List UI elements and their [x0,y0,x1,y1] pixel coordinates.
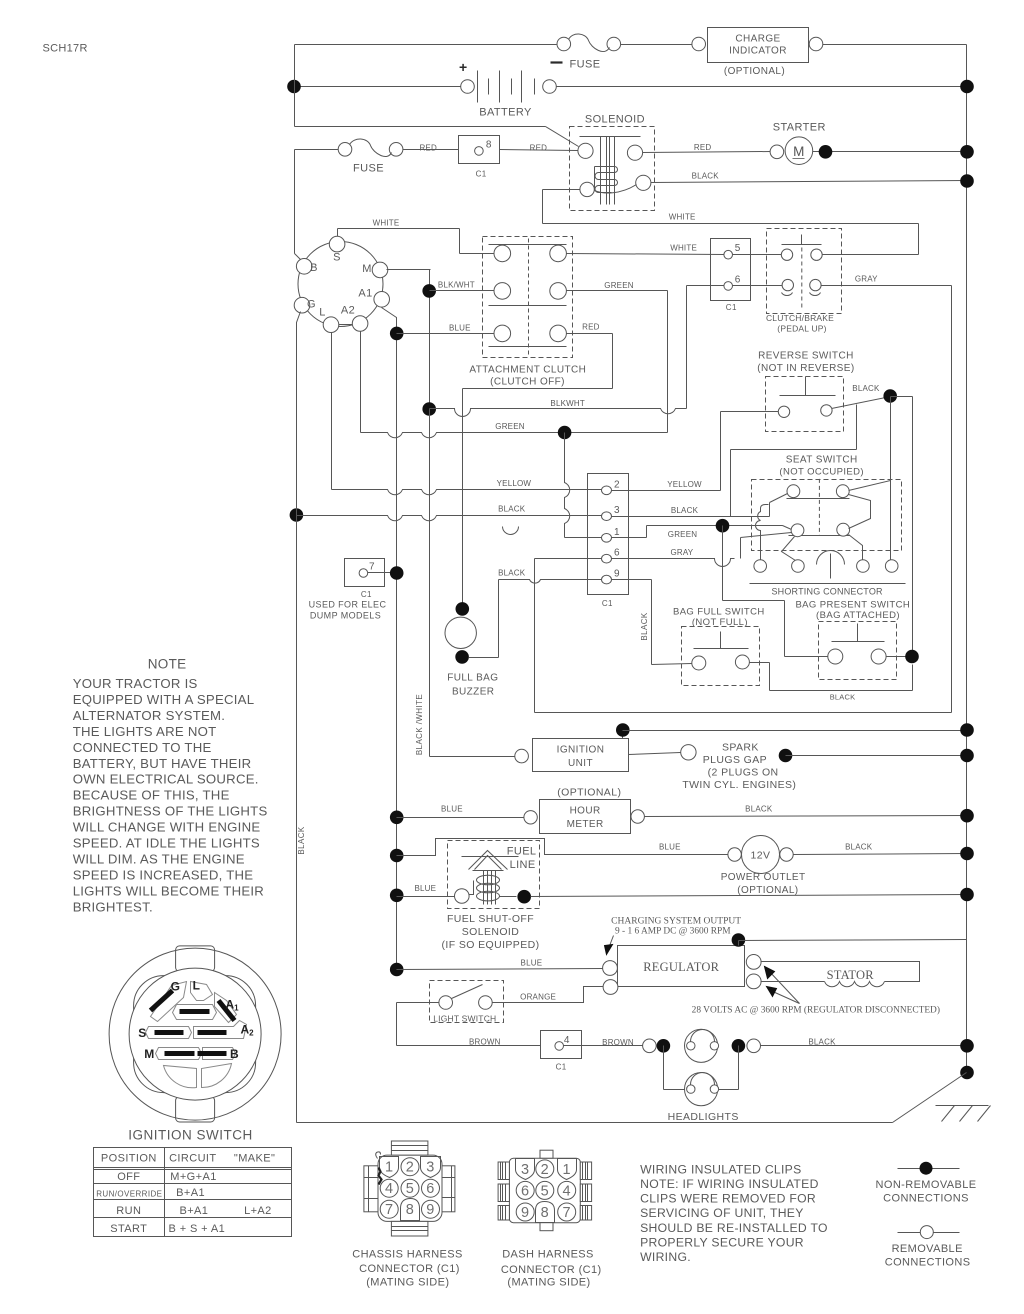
svg-text:FUSE: FUSE [570,59,601,71]
svg-text:WHITE: WHITE [670,244,697,253]
svg-text:LIGHTS WILL BECOME THEIR: LIGHTS WILL BECOME THEIR [73,883,264,898]
svg-text:M: M [144,1047,154,1061]
svg-text:4: 4 [385,1181,393,1197]
svg-text:FULL BAG: FULL BAG [447,673,498,684]
svg-text:6: 6 [614,548,620,559]
svg-text:(MATING SIDE): (MATING SIDE) [507,1277,590,1289]
svg-text:C1: C1 [602,599,613,608]
svg-text:(OPTIONAL): (OPTIONAL) [557,787,621,799]
svg-text:LIGHT SWITCH: LIGHT SWITCH [433,1014,496,1024]
svg-text:L: L [319,307,326,319]
svg-text:5: 5 [735,243,741,254]
svg-text:S: S [333,252,341,264]
svg-text:CONNECTOR (C1): CONNECTOR (C1) [359,1263,460,1275]
svg-text:"MAKE": "MAKE" [234,1153,275,1165]
svg-text:CLIPS WERE REMOVED FOR: CLIPS WERE REMOVED FOR [640,1192,816,1206]
svg-text:BLACK: BLACK [845,843,873,852]
svg-text:BLACK: BLACK [852,384,880,393]
svg-text:PROPERLY SECURE YOUR: PROPERLY SECURE YOUR [640,1235,804,1249]
svg-text:WIRING INSULATED CLIPS: WIRING INSULATED CLIPS [640,1162,801,1176]
svg-text:BAG PRESENT SWITCH: BAG PRESENT SWITCH [795,600,910,611]
svg-text:WHITE: WHITE [373,219,400,228]
svg-text:L: L [193,979,201,993]
svg-text:BLACK: BLACK [830,693,856,702]
svg-text:FUEL: FUEL [507,846,537,858]
svg-text:9: 9 [521,1205,529,1221]
svg-text:BUZZER: BUZZER [452,687,494,698]
svg-text:B + S + A1: B + S + A1 [169,1223,226,1235]
svg-text:CHASSIS HARNESS: CHASSIS HARNESS [352,1248,463,1260]
svg-text:USED FOR ELEC: USED FOR ELEC [309,600,387,610]
svg-text:BLUE: BLUE [441,805,463,814]
svg-text:UNIT: UNIT [568,758,593,769]
svg-text:7: 7 [385,1202,393,1218]
svg-text:BLUE: BLUE [659,843,681,852]
svg-text:ORANGE: ORANGE [520,993,556,1002]
svg-text:POSITION: POSITION [101,1153,157,1165]
svg-text:YELLOW: YELLOW [497,479,532,488]
svg-text:1: 1 [614,527,620,538]
svg-text:SCH17R: SCH17R [43,43,88,55]
svg-text:SOLENOID: SOLENOID [462,926,519,938]
svg-text:WILL CHANGE WITH ENGINE: WILL CHANGE WITH ENGINE [73,820,261,835]
svg-text:4: 4 [564,1035,570,1046]
svg-text:CONNECTIONS: CONNECTIONS [883,1192,969,1204]
svg-text:BLACK /WHITE: BLACK /WHITE [415,694,424,755]
svg-text:STATOR: STATOR [827,968,875,982]
svg-text:HOUR: HOUR [570,806,601,817]
svg-text:SPEED IS INCREASED, THE: SPEED IS INCREASED, THE [73,867,254,882]
svg-text:(CLUTCH OFF): (CLUTCH OFF) [490,377,565,388]
svg-text:5: 5 [541,1183,549,1199]
svg-text:8: 8 [541,1205,549,1221]
svg-text:M: M [793,144,805,159]
svg-text:B+A1: B+A1 [179,1205,208,1217]
svg-text:(NOT IN REVERSE): (NOT IN REVERSE) [757,363,854,374]
svg-text:(PEDAL UP): (PEDAL UP) [777,324,826,334]
svg-text:POWER OUTLET: POWER OUTLET [721,872,806,883]
svg-text:ATTACHMENT CLUTCH: ATTACHMENT CLUTCH [469,365,586,376]
svg-text:BLK/WHT: BLK/WHT [438,281,475,290]
svg-text:STARTER: STARTER [773,122,826,134]
svg-text:6: 6 [735,275,741,286]
svg-text:REMOVABLE: REMOVABLE [892,1243,963,1255]
svg-text:EQUIPPED WITH A SPECIAL: EQUIPPED WITH A SPECIAL [73,692,255,707]
svg-text:4: 4 [562,1183,570,1199]
svg-text:WILL DIM. AS THE ENGINE: WILL DIM. AS THE ENGINE [73,851,245,866]
svg-text:BLACK: BLACK [297,826,306,854]
svg-text:ALTERNATOR SYSTEM.: ALTERNATOR SYSTEM. [73,708,226,723]
svg-text:CONNECTED TO THE: CONNECTED TO THE [73,740,212,755]
svg-text:BROWN: BROWN [469,1038,501,1047]
svg-text:G: G [307,299,316,311]
svg-text:BLACK: BLACK [671,506,699,515]
svg-text:12V: 12V [751,850,771,862]
svg-text:BLKWHT: BLKWHT [550,399,585,408]
svg-text:2: 2 [614,479,620,490]
svg-text:GREEN: GREEN [604,281,633,290]
svg-text:RED: RED [582,323,600,332]
svg-text:M: M [362,263,372,275]
svg-text:SPARK: SPARK [722,742,759,754]
svg-text:L+A2: L+A2 [244,1205,272,1217]
svg-text:G: G [171,980,181,994]
svg-text:DUMP MODELS: DUMP MODELS [310,611,381,621]
svg-text:GREEN: GREEN [668,530,697,539]
svg-text:LINE: LINE [510,859,536,871]
svg-text:BATTERY, BUT HAVE THEIR: BATTERY, BUT HAVE THEIR [73,756,252,771]
svg-text:6: 6 [521,1183,529,1199]
svg-text:BROWN: BROWN [602,1038,634,1047]
svg-text:HEADLIGHTS: HEADLIGHTS [668,1111,739,1123]
svg-text:WIRING.: WIRING. [640,1250,691,1264]
svg-text:C1: C1 [726,303,737,312]
svg-text:BLACK: BLACK [745,805,773,814]
svg-text:REGULATOR: REGULATOR [643,960,719,974]
svg-text:(BAG ATTACHED): (BAG ATTACHED) [816,610,900,621]
svg-text:NON-REMOVABLE: NON-REMOVABLE [876,1179,977,1191]
svg-text:FUSE: FUSE [353,163,384,175]
svg-text:A2: A2 [341,305,355,317]
svg-text:CHARGING SYSTEM OUTPUT: CHARGING SYSTEM OUTPUT [611,917,741,927]
svg-text:8: 8 [486,140,492,151]
svg-text:9: 9 [426,1202,434,1218]
svg-text:FUEL SHUT-OFF: FUEL SHUT-OFF [447,913,534,925]
svg-text:RED: RED [530,144,548,153]
svg-text:3: 3 [614,505,620,516]
svg-text:IGNITION SWITCH: IGNITION SWITCH [128,1128,253,1143]
svg-text:C1: C1 [476,170,487,179]
svg-text:SOLENOID: SOLENOID [585,114,645,126]
svg-text:3: 3 [426,1160,434,1176]
svg-text:PLUGS GAP: PLUGS GAP [703,754,767,766]
svg-text:BRIGHTEST.: BRIGHTEST. [73,899,153,914]
svg-text:BLUE: BLUE [449,324,471,333]
svg-text:SHORTING CONNECTOR: SHORTING CONNECTOR [771,587,883,597]
svg-text:1: 1 [385,1160,393,1176]
svg-text:BLACK: BLACK [640,612,649,640]
svg-text:NOTE: NOTE [148,657,187,672]
svg-text:IGNITION: IGNITION [557,745,605,756]
svg-text:CHARGE: CHARGE [735,34,780,45]
svg-text:6: 6 [426,1181,434,1197]
svg-text:2: 2 [406,1160,414,1176]
svg-text:GREEN: GREEN [495,422,524,431]
svg-text:BLACK: BLACK [498,504,526,513]
svg-text:CIRCUIT: CIRCUIT [169,1153,216,1165]
svg-text:C1: C1 [361,590,372,599]
svg-text:START: START [110,1223,147,1235]
svg-text:RUN: RUN [116,1205,141,1217]
svg-text:1: 1 [562,1162,570,1178]
svg-text:(OPTIONAL): (OPTIONAL) [737,885,798,896]
svg-text:BLACK: BLACK [498,569,526,578]
svg-text:SEAT SWITCH: SEAT SWITCH [786,455,858,466]
svg-text:THE LIGHTS ARE NOT: THE LIGHTS ARE NOT [73,724,217,739]
svg-text:BRIGHTNESS OF THE LIGHTS: BRIGHTNESS OF THE LIGHTS [73,804,268,819]
svg-text:CLUTCH/BRAKE: CLUTCH/BRAKE [766,313,834,323]
svg-text:7: 7 [562,1205,570,1221]
svg-text:9: 9 [614,569,620,580]
svg-text:YELLOW: YELLOW [667,480,702,489]
svg-text:28 VOLTS AC @ 3600 RPM (REGULA: 28 VOLTS AC @ 3600 RPM (REGULATOR DISCON… [692,1005,940,1016]
svg-text:WHITE: WHITE [669,213,696,222]
svg-text:GRAY: GRAY [855,275,878,284]
svg-text:B+A1: B+A1 [176,1187,205,1199]
svg-text:A1: A1 [358,288,372,300]
svg-text:RED: RED [419,144,437,153]
svg-text:BLUE: BLUE [414,884,436,893]
svg-text:(NOT OCCUPIED): (NOT OCCUPIED) [779,467,864,478]
svg-text:RUN/OVERRIDE: RUN/OVERRIDE [96,1190,162,1199]
svg-text:DASH HARNESS: DASH HARNESS [502,1248,594,1260]
svg-text:B: B [230,1047,239,1061]
svg-text:SHOULD BE RE-INSTALLED TO: SHOULD BE RE-INSTALLED TO [640,1221,828,1235]
svg-text:RED: RED [694,143,712,152]
svg-text:OWN ELECTRICAL SOURCE.: OWN ELECTRICAL SOURCE. [73,772,259,787]
svg-text:REVERSE SWITCH: REVERSE SWITCH [758,351,854,362]
svg-text:OFF: OFF [117,1171,140,1183]
svg-text:(MATING SIDE): (MATING SIDE) [366,1277,449,1289]
svg-text:BECAUSE OF THIS, THE: BECAUSE OF THIS, THE [73,788,230,803]
svg-text:S: S [138,1026,146,1040]
svg-text:2: 2 [541,1162,549,1178]
svg-text:(2 PLUGS ON: (2 PLUGS ON [708,767,779,779]
svg-text:5: 5 [406,1181,414,1197]
svg-text:3: 3 [521,1162,529,1178]
svg-text:BAG FULL SWITCH: BAG FULL SWITCH [673,607,765,618]
svg-text:BLACK: BLACK [808,1038,836,1047]
svg-text:INDICATOR: INDICATOR [729,46,787,57]
svg-text:+: + [459,59,468,75]
svg-text:B: B [310,262,318,274]
svg-text:(IF SO EQUIPPED): (IF SO EQUIPPED) [442,939,540,951]
svg-text:GRAY: GRAY [670,548,693,557]
svg-text:CONNECTIONS: CONNECTIONS [885,1257,971,1269]
svg-text:METER: METER [567,819,604,830]
svg-text:BATTERY: BATTERY [479,107,532,119]
svg-text:BLACK: BLACK [692,172,720,181]
svg-text:YOUR TRACTOR IS: YOUR TRACTOR IS [73,676,198,691]
svg-text:7: 7 [369,562,375,573]
svg-text:NOTE: IF WIRING INSULATED: NOTE: IF WIRING INSULATED [640,1177,819,1191]
svg-text:CONNECTOR (C1): CONNECTOR (C1) [501,1264,602,1276]
svg-text:TWIN CYL. ENGINES): TWIN CYL. ENGINES) [682,779,796,791]
svg-text:8: 8 [406,1202,414,1218]
svg-text:SERVICING OF UNIT, THEY: SERVICING OF UNIT, THEY [640,1206,804,1220]
svg-text:(OPTIONAL): (OPTIONAL) [724,66,785,77]
svg-text:C1: C1 [556,1063,567,1072]
svg-text:9 - 1 6 AMP DC @ 3600 RPM: 9 - 1 6 AMP DC @ 3600 RPM [615,927,731,937]
svg-text:BLUE: BLUE [521,959,543,968]
svg-text:SPEED. AT IDLE THE LIGHTS: SPEED. AT IDLE THE LIGHTS [73,836,260,851]
svg-text:M+G+A1: M+G+A1 [170,1171,216,1183]
